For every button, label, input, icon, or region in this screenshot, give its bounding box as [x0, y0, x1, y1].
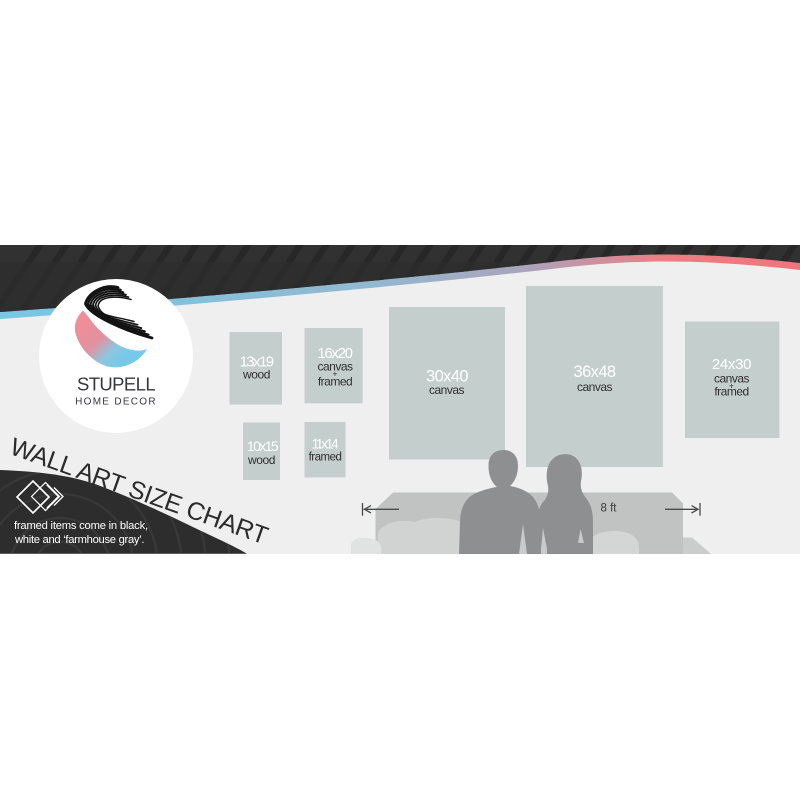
- svg-text:white and ‘farmhouse gray’.: white and ‘farmhouse gray’.: [14, 534, 144, 546]
- svg-text:canvas: canvas: [429, 383, 465, 397]
- svg-text:framed: framed: [309, 452, 342, 464]
- svg-text:wood: wood: [247, 453, 275, 467]
- svg-text:framed: framed: [318, 375, 352, 389]
- svg-text:11x14: 11x14: [312, 437, 339, 452]
- svg-text:canvas: canvas: [577, 380, 613, 394]
- svg-text:HOME DECOR: HOME DECOR: [75, 397, 157, 408]
- svg-text:framed: framed: [714, 385, 748, 399]
- svg-text:36x48: 36x48: [574, 363, 616, 381]
- svg-text:8 ft: 8 ft: [601, 503, 618, 515]
- svg-text:wood: wood: [242, 368, 270, 382]
- svg-text:10x15: 10x15: [247, 438, 279, 454]
- svg-text:framed items come in black,: framed items come in black,: [14, 520, 148, 532]
- svg-text:STUPELL: STUPELL: [77, 374, 155, 395]
- svg-text:24x30: 24x30: [712, 356, 751, 373]
